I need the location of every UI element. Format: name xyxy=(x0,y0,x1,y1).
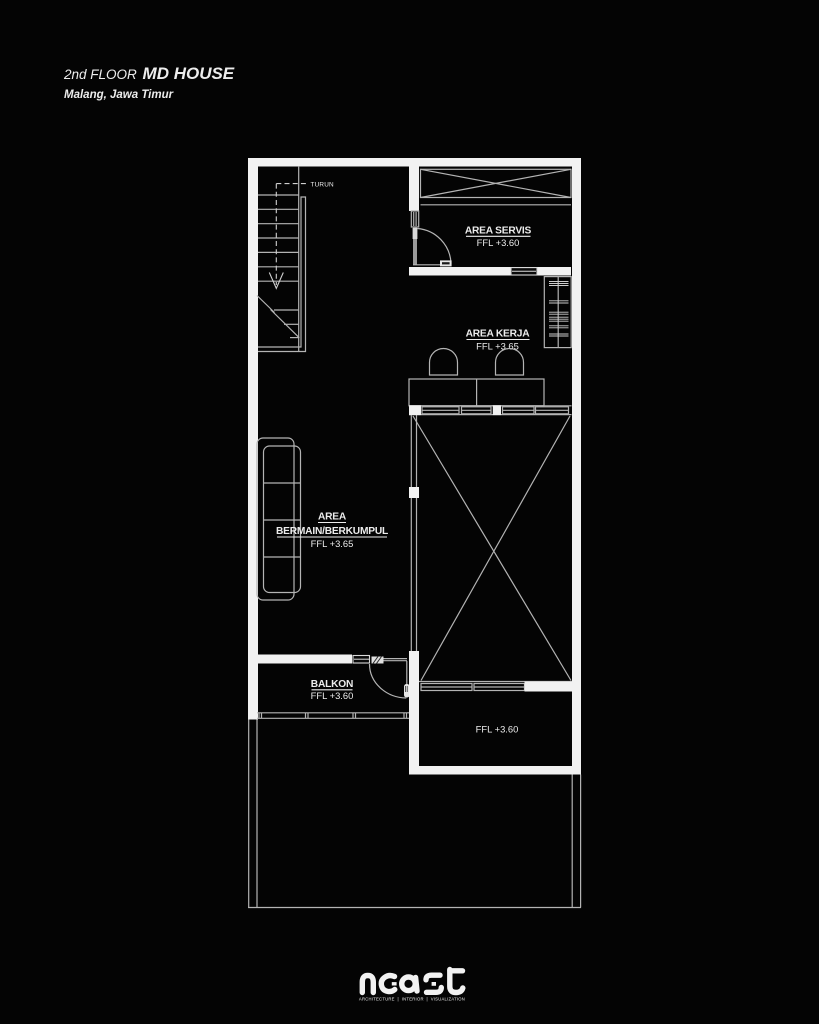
svg-text:FFL +3.60: FFL +3.60 xyxy=(476,724,519,735)
svg-text:FFL +3.65: FFL +3.65 xyxy=(311,538,354,549)
svg-text:AREA SERVIS: AREA SERVIS xyxy=(465,226,532,237)
svg-text:BALKON: BALKON xyxy=(311,679,353,690)
svg-text:FFL +3.60: FFL +3.60 xyxy=(311,690,354,701)
svg-text:Malang, Jawa Timur: Malang, Jawa Timur xyxy=(64,89,174,101)
svg-text:FFL +3.60: FFL +3.60 xyxy=(477,237,520,248)
svg-text:AREA KERJA: AREA KERJA xyxy=(466,329,531,340)
svg-text:FFL +3.65: FFL +3.65 xyxy=(476,341,519,352)
svg-text:BERMAIN/BERKUMPUL: BERMAIN/BERKUMPUL xyxy=(276,526,388,537)
svg-text:2nd FLOOR MD HOUSE: 2nd FLOOR MD HOUSE xyxy=(63,64,235,83)
svg-text:ARCHITECTURE | INTERIOR |: ARCHITECTURE | INTERIOR | VISUALIZATION xyxy=(359,997,465,1002)
svg-text:TURUN: TURUN xyxy=(311,182,335,189)
svg-text:AREA: AREA xyxy=(318,512,347,523)
